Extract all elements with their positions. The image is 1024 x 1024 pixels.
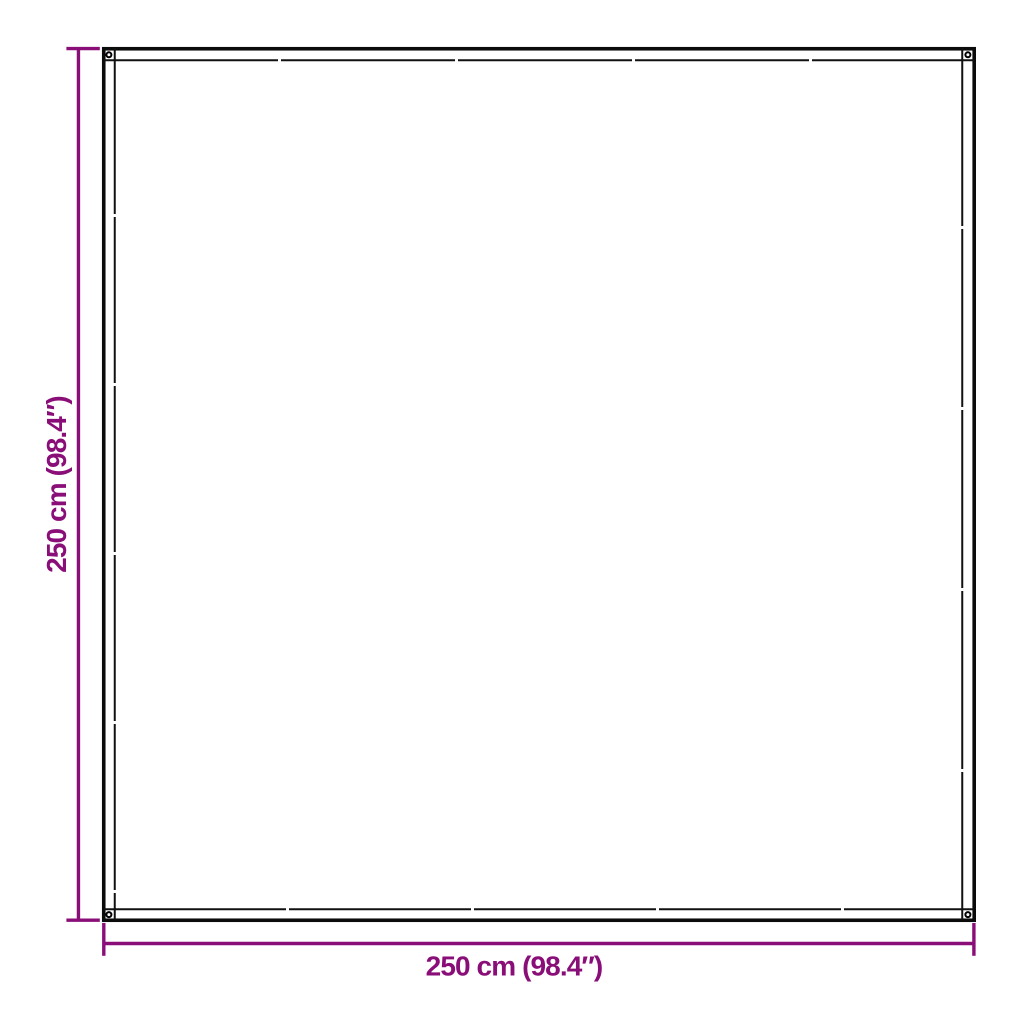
svg-text:250 cm (98.4″): 250 cm (98.4″): [426, 951, 603, 982]
svg-text:250 cm (98.4″): 250 cm (98.4″): [41, 396, 72, 573]
